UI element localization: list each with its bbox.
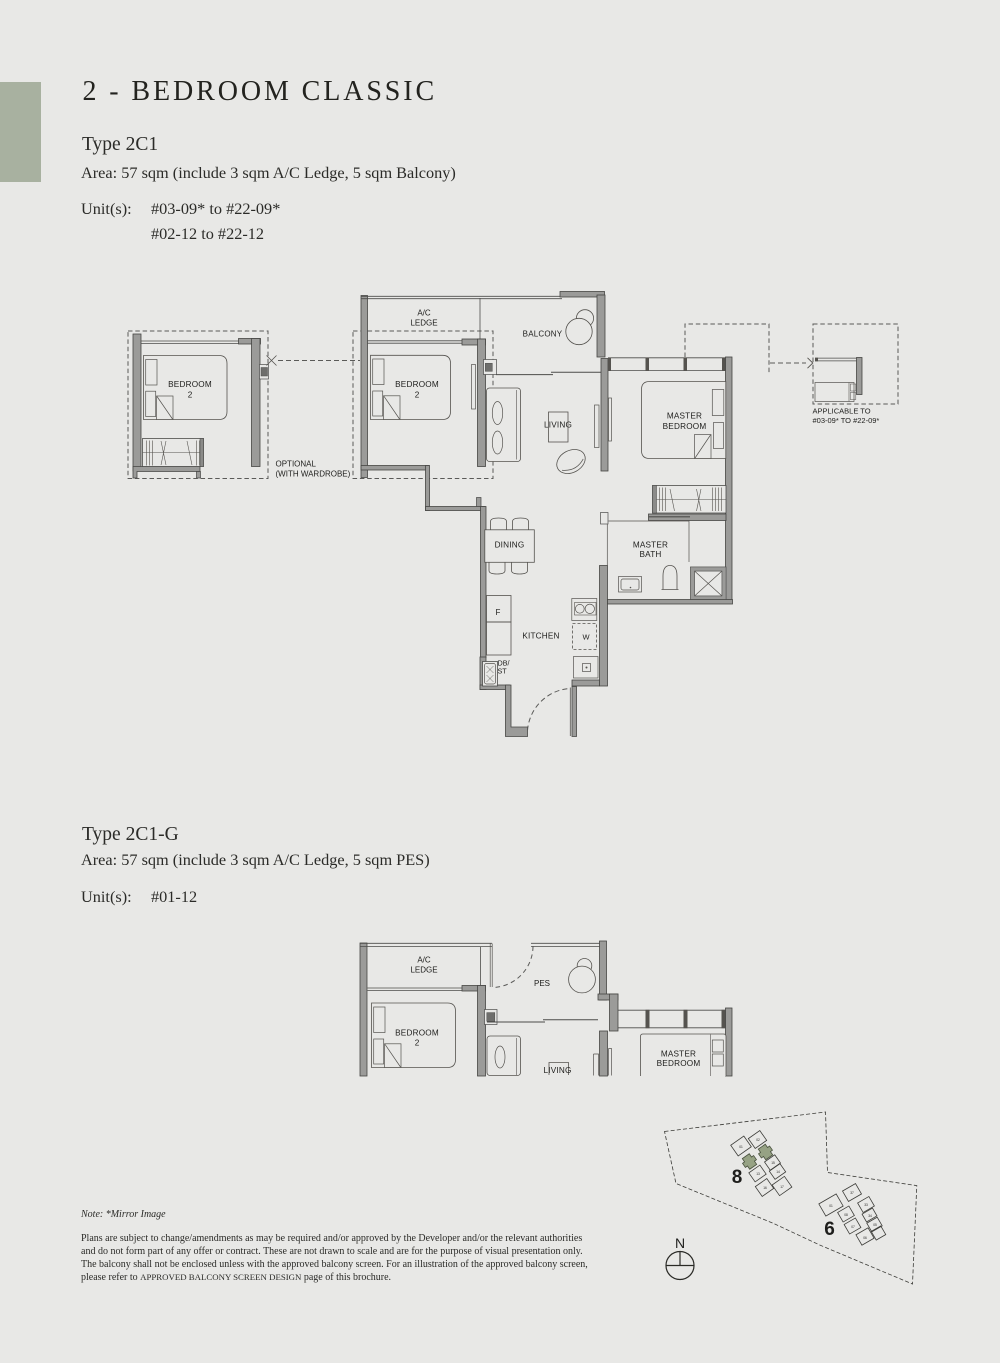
svg-text:DINING: DINING [495, 541, 525, 550]
svg-text:F: F [496, 608, 501, 617]
svg-text:08: 08 [844, 1213, 848, 1217]
svg-text:BEDROOM: BEDROOM [663, 422, 707, 431]
svg-text:KITCHEN: KITCHEN [522, 632, 559, 641]
svg-text:8: 8 [732, 1167, 743, 1188]
svg-text:#03-09* TO #22-09*: #03-09* TO #22-09* [813, 416, 880, 425]
svg-text:06: 06 [863, 1236, 867, 1240]
svg-text:BEDROOM: BEDROOM [395, 1029, 439, 1038]
svg-text:37: 37 [850, 1191, 854, 1195]
svg-text:APPLICABLE TO: APPLICABLE TO [813, 407, 871, 416]
svg-text:33: 33 [864, 1203, 868, 1207]
svg-text:01: 01 [739, 1145, 743, 1149]
svg-text:6: 6 [824, 1219, 835, 1240]
svg-text:LIVING: LIVING [543, 1066, 571, 1075]
svg-text:MASTER: MASTER [661, 1050, 696, 1059]
svg-text:ST: ST [498, 667, 508, 676]
svg-text:2: 2 [415, 1039, 420, 1048]
svg-text:13: 13 [756, 1172, 760, 1176]
svg-text:N: N [675, 1235, 685, 1251]
svg-text:2: 2 [415, 391, 420, 400]
svg-text:A/C: A/C [417, 309, 431, 318]
svg-text:BEDROOM: BEDROOM [168, 380, 212, 389]
svg-text:PES: PES [534, 979, 550, 988]
svg-text:17: 17 [780, 1185, 784, 1189]
svg-text:15: 15 [771, 1161, 775, 1165]
svg-text:OPTIONAL: OPTIONAL [276, 460, 317, 469]
svg-text:LEDGE: LEDGE [410, 319, 437, 328]
svg-text:34: 34 [868, 1214, 872, 1218]
svg-text:16: 16 [763, 1186, 767, 1190]
svg-text:BEDROOM: BEDROOM [657, 1059, 701, 1068]
svg-text:2: 2 [188, 391, 193, 400]
svg-text:MASTER: MASTER [667, 412, 702, 421]
svg-text:BALCONY: BALCONY [523, 330, 563, 339]
svg-text:LEDGE: LEDGE [410, 966, 437, 975]
svg-text:BATH: BATH [639, 550, 661, 559]
svg-text:A/C: A/C [417, 956, 431, 965]
svg-text:MASTER: MASTER [633, 541, 668, 550]
svg-text:14: 14 [776, 1170, 780, 1174]
svg-text:02: 02 [756, 1138, 760, 1142]
svg-text:W: W [582, 633, 590, 642]
svg-text:01: 01 [829, 1204, 833, 1208]
svg-text:(WITH WARDROBE): (WITH WARDROBE) [276, 470, 351, 479]
svg-text:07: 07 [851, 1225, 855, 1229]
svg-text:BEDROOM: BEDROOM [395, 380, 439, 389]
svg-text:05: 05 [873, 1223, 877, 1227]
